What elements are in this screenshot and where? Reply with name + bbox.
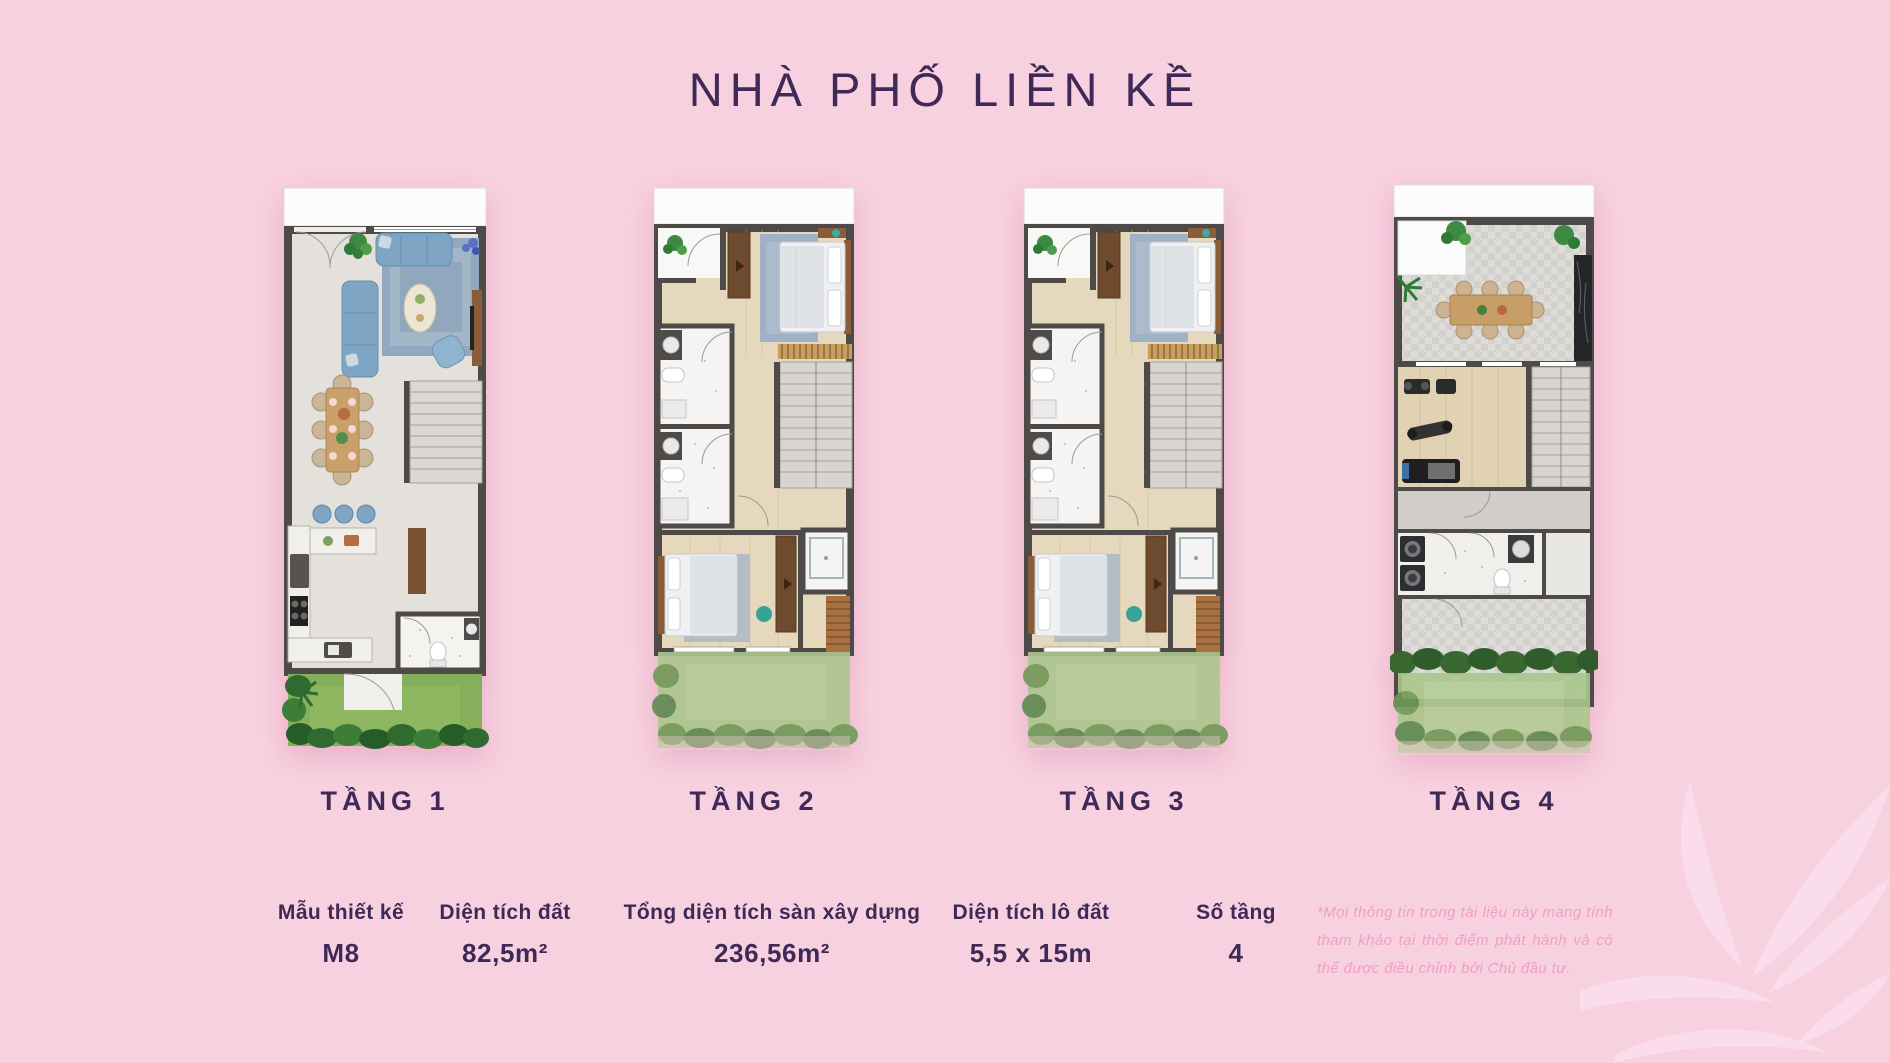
- spec-lot-dimensions: Diện tích lô đất 5,5 x 15m: [953, 901, 1110, 969]
- floor-plan-tang-1: [280, 186, 490, 758]
- spec-design-model-label: Mẫu thiết kế: [278, 901, 404, 925]
- floor-label-tang-4: TẦNG 4: [1429, 786, 1558, 817]
- floor-plan-3-drawing: [1020, 186, 1228, 764]
- spec-lot-dimensions-value: 5,5 x 15m: [970, 938, 1093, 969]
- floor-label-tang-1: TẦNG 1: [320, 786, 449, 817]
- floor-plan-tang-4: [1390, 183, 1598, 763]
- disclaimer-line-3: thể được điều chỉnh bởi Chủ đầu tư.: [1317, 955, 1613, 983]
- spec-land-area-label: Diện tích đất: [439, 901, 570, 925]
- spec-floor-count: Số tầng 4: [1196, 901, 1276, 969]
- floor-plan-tang-2: [650, 186, 858, 764]
- floor-label-tang-3: TẦNG 3: [1059, 786, 1188, 817]
- spec-total-floor-area-value: 236,56m²: [714, 938, 830, 969]
- spec-design-model-value: M8: [322, 938, 359, 969]
- spec-floor-count-value: 4: [1228, 938, 1243, 969]
- spec-land-area: Diện tích đất 82,5m²: [439, 901, 570, 969]
- floor-plan-tang-3: [1020, 186, 1228, 764]
- spec-floor-count-label: Số tầng: [1196, 901, 1276, 925]
- disclaimer-line-1: *Mọi thông tin trong tài liệu này mang t…: [1317, 899, 1613, 927]
- page-title: NHÀ PHỐ LIỀN KỀ: [0, 62, 1890, 117]
- brochure-page: NHÀ PHỐ LIỀN KỀ: [0, 0, 1890, 1063]
- floor-plan-2-drawing: [650, 186, 858, 764]
- floor-plan-1-drawing: [280, 186, 490, 758]
- spec-total-floor-area: Tổng diện tích sàn xây dựng 236,56m²: [624, 901, 921, 969]
- disclaimer-line-2: tham khảo tại thời điểm phát hành và có: [1317, 927, 1613, 955]
- spec-total-floor-area-label: Tổng diện tích sàn xây dựng: [624, 901, 921, 925]
- disclaimer-note: *Mọi thông tin trong tài liệu này mang t…: [1317, 899, 1613, 983]
- spec-lot-dimensions-label: Diện tích lô đất: [953, 901, 1110, 925]
- spec-design-model: Mẫu thiết kế M8: [278, 901, 404, 969]
- spec-land-area-value: 82,5m²: [462, 938, 548, 969]
- lotus-leaf-decoration-icon: [1580, 763, 1890, 1063]
- floor-label-tang-2: TẦNG 2: [689, 786, 818, 817]
- floor-plan-4-drawing: [1390, 183, 1598, 763]
